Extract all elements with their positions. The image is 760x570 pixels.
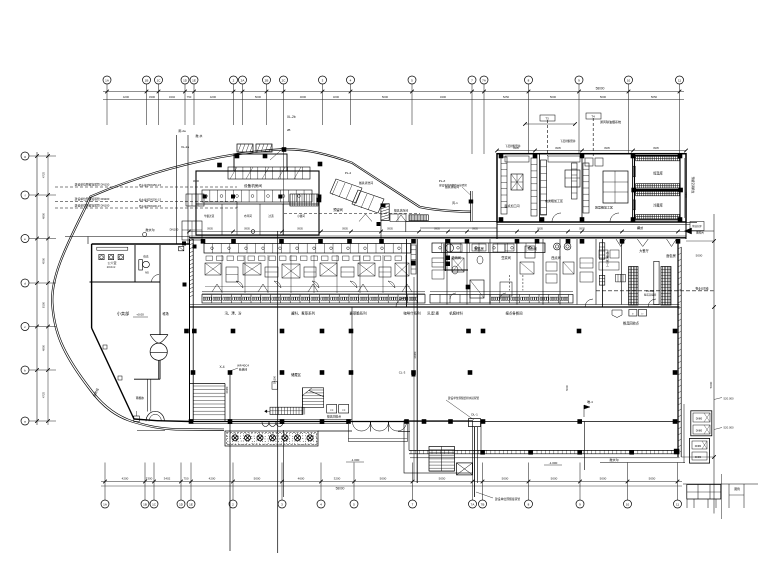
svg-text:电话交接间: 电话交接间: [644, 293, 657, 297]
svg-text:5000: 5000: [600, 95, 607, 99]
svg-text:58000: 58000: [336, 487, 345, 491]
svg-text:酱料、煮菜系列: 酱料、煮菜系列: [291, 311, 315, 316]
svg-text:0905: 0905: [207, 227, 213, 231]
svg-text:小卖部: 小卖部: [117, 310, 130, 317]
svg-text:蔬菜粗加工区: 蔬菜粗加工区: [595, 205, 613, 210]
svg-text:DL-1: DL-1: [471, 413, 478, 417]
svg-text:1A: 1A: [103, 502, 107, 506]
svg-text:4800: 4800: [42, 344, 46, 351]
svg-text:7B: 7B: [481, 502, 485, 506]
svg-text:给水接驳DN200-1.5: 给水接驳DN200-1.5: [139, 197, 162, 201]
svg-text:DN100: DN100: [170, 228, 179, 232]
svg-text:大餐厅: 大餐厅: [639, 248, 649, 253]
svg-text:洗消间: 洗消间: [451, 255, 461, 260]
svg-text:5000: 5000: [551, 477, 558, 481]
svg-text:DN80: DN80: [225, 386, 229, 393]
svg-text:0905: 0905: [342, 227, 348, 231]
svg-text:DN100: DN100: [273, 375, 277, 384]
svg-text:M5: M5: [145, 272, 149, 275]
svg-text:1A: 1A: [105, 78, 109, 82]
svg-text:建设单位预留给水接驳管: 建设单位预留给水接驳管: [439, 183, 467, 187]
svg-text:750: 750: [183, 477, 188, 481]
svg-text:建设单位预留接驳管 DN200: 建设单位预留接驳管 DN200: [75, 197, 110, 201]
svg-text:给水接驳DN150-1.5: 给水接驳DN150-1.5: [139, 183, 162, 187]
svg-text:DN80: DN80: [696, 418, 703, 421]
svg-text:××: ××: [342, 408, 346, 412]
svg-text:散-水: 散-水: [196, 133, 203, 138]
svg-text:唯-4: 唯-4: [587, 399, 593, 404]
svg-text:风-1: 风-1: [452, 201, 458, 205]
svg-text:3200: 3200: [334, 477, 341, 481]
svg-text:图样台: 图样台: [696, 231, 704, 235]
svg-text:7A: 7A: [471, 502, 475, 506]
svg-text:工: 工: [606, 263, 609, 267]
svg-text:5050: 5050: [651, 95, 658, 99]
svg-text:CL-3: CL-3: [399, 371, 406, 375]
svg-text:3300: 3300: [146, 477, 153, 481]
svg-text:5000: 5000: [696, 254, 703, 258]
svg-text:3200: 3200: [333, 95, 340, 99]
svg-text:5000: 5000: [255, 95, 262, 99]
svg-text:4600: 4600: [300, 95, 307, 99]
svg-text:设备机房间: 设备机房间: [244, 183, 262, 188]
svg-text:5250: 5250: [503, 95, 510, 99]
svg-text:0905: 0905: [387, 227, 393, 231]
svg-text:布草间: 布草间: [244, 214, 252, 218]
svg-text:系统间: 系统间: [239, 368, 248, 372]
svg-text:PL-2: PL-2: [345, 171, 352, 175]
svg-text:+0.00: +0.00: [136, 313, 144, 317]
svg-text:雨棚水: 雨棚水: [136, 396, 145, 400]
svg-text:750: 750: [187, 95, 192, 99]
svg-text:通风除油烟系统: 通风除油烟系统: [600, 119, 621, 124]
svg-text:X-4: X-4: [220, 365, 225, 369]
svg-text:蛋糕房: 蛋糕房: [474, 246, 484, 251]
svg-text:建设单位预留接驳管 DN150: 建设单位预留接驳管 DN150: [75, 183, 110, 187]
svg-text:5000: 5000: [550, 95, 557, 99]
svg-text:4600: 4600: [298, 477, 305, 481]
svg-text:5000: 5000: [254, 477, 261, 481]
svg-text:0905: 0905: [513, 146, 519, 150]
svg-text:4725: 4725: [42, 171, 46, 178]
svg-text:建设单位预留给排水接驳管: 建设单位预留给排水接驳管: [448, 396, 480, 400]
svg-text:牛餐过道: 牛餐过道: [204, 214, 215, 218]
svg-text:××: ××: [330, 408, 334, 412]
svg-text:4200: 4200: [122, 477, 129, 481]
svg-text:0905: 0905: [579, 227, 585, 231]
svg-text:PL-Z: PL-Z: [439, 179, 446, 183]
svg-text:DN80: DN80: [695, 456, 702, 459]
svg-text:恒温库: 恒温库: [653, 171, 663, 176]
svg-text:预留间: 预留间: [333, 207, 343, 212]
svg-text:11: 11: [676, 502, 679, 506]
svg-text:11: 11: [678, 78, 681, 82]
svg-text:5050: 5050: [439, 477, 446, 481]
svg-text:T3: T3: [545, 117, 549, 121]
svg-text:餐具回收点: 餐具回收点: [327, 415, 341, 419]
svg-text:煮面间: 煮面间: [527, 246, 537, 251]
svg-text:机腐材料: 机腐材料: [449, 311, 463, 316]
svg-text:520.000: 520.000: [724, 426, 735, 430]
svg-text:冷藏库: 冷藏库: [653, 203, 663, 208]
svg-text:过道: 过道: [268, 214, 274, 218]
svg-text:4200: 4200: [209, 477, 216, 481]
svg-text:1E: 1E: [189, 502, 193, 506]
svg-text:3402: 3402: [164, 477, 171, 481]
svg-text:7A: 7A: [482, 78, 486, 82]
svg-text:下层排烟竖井: 下层排烟竖井: [560, 139, 576, 143]
svg-text:雨-2a: 雨-2a: [178, 129, 186, 133]
svg-text:5000: 5000: [600, 477, 607, 481]
svg-text:0905: 0905: [604, 146, 610, 150]
svg-text:预留空调机位: 预留空调机位: [691, 177, 695, 194]
svg-text:咖啡什系列: 咖啡什系列: [404, 311, 422, 316]
svg-text:餐具回收点: 餐具回收点: [623, 321, 640, 326]
svg-text:DN80: DN80: [695, 445, 702, 448]
svg-text:堆场: 堆场: [162, 311, 168, 316]
svg-text:10.0m²: 10.0m²: [107, 265, 116, 269]
svg-text:3300: 3300: [149, 95, 156, 99]
svg-text:10: 10: [627, 78, 631, 82]
svg-text:图例: 图例: [734, 487, 740, 491]
svg-text:建设单位预留接驳管 DN100: 建设单位预留接驳管 DN100: [75, 204, 110, 208]
svg-text:报点各餐间: 报点各餐间: [506, 311, 524, 316]
svg-text:4200: 4200: [210, 95, 217, 99]
svg-text:4500: 4500: [42, 257, 46, 264]
svg-text:4725: 4725: [42, 391, 46, 398]
svg-text:5050: 5050: [649, 477, 656, 481]
svg-text:1B: 1B: [143, 502, 147, 506]
svg-text:58000: 58000: [596, 87, 605, 91]
svg-text:0905: 0905: [244, 227, 250, 231]
svg-text:散水沟: 散水沟: [145, 227, 154, 232]
svg-text:3400: 3400: [440, 95, 447, 99]
svg-text:肉类粗加工区: 肉类粗加工区: [545, 198, 563, 203]
svg-text:XL-2b: XL-2b: [287, 115, 296, 119]
svg-text:5000: 5000: [709, 381, 713, 388]
svg-text:8520: 8520: [685, 192, 688, 198]
svg-text:1E: 1E: [192, 78, 196, 82]
svg-text:T4: T4: [591, 115, 595, 119]
svg-text:汛.配.煮: 汛.配.煮: [427, 311, 440, 316]
svg-text:DN80: DN80: [413, 351, 417, 358]
svg-text:汛、漂、汾: 汛、漂、汾: [225, 311, 243, 316]
svg-text:0905: 0905: [434, 227, 440, 231]
svg-text:1B: 1B: [145, 78, 149, 82]
svg-text:520.000: 520.000: [724, 397, 735, 401]
svg-text:-1.000: -1.000: [549, 461, 558, 465]
svg-text:豆浆间: 豆浆间: [501, 255, 511, 260]
svg-text:0905: 0905: [653, 146, 659, 150]
svg-text:5000: 5000: [382, 95, 389, 99]
svg-text:物业分界线: 物业分界线: [696, 286, 709, 290]
svg-text:建设单位预留接驳管: 建设单位预留接驳管: [495, 497, 520, 501]
svg-text:-1.000: -1.000: [351, 458, 360, 462]
svg-text:4800: 4800: [42, 212, 46, 219]
svg-text:储藏区: 储藏区: [291, 372, 302, 377]
svg-text:西点间: 西点间: [551, 255, 561, 260]
svg-text:4200: 4200: [123, 95, 130, 99]
svg-text:2B: 2B: [265, 78, 269, 82]
svg-text:0905: 0905: [537, 227, 543, 231]
svg-text:5000: 5000: [502, 477, 509, 481]
svg-text:餐具洗涤间: 餐具洗涤间: [394, 209, 408, 213]
svg-text:送-4: 送-4: [637, 225, 643, 230]
svg-text:面包房: 面包房: [666, 253, 676, 258]
svg-text:5000: 5000: [380, 477, 387, 481]
svg-text:0905: 0905: [555, 146, 561, 150]
svg-text:0905: 0905: [472, 227, 478, 231]
svg-text:面点加工间: 面点加工间: [504, 203, 519, 208]
svg-text:2A: 2A: [241, 78, 245, 82]
svg-text:DN80: DN80: [696, 430, 703, 433]
svg-text:8100: 8100: [42, 301, 46, 308]
svg-text:餐具清洗间: 餐具清洗间: [359, 181, 373, 185]
svg-text:散水沟: 散水沟: [609, 457, 618, 462]
svg-text:给水接驳DN100-1.5: 给水接驳DN100-1.5: [139, 204, 162, 208]
svg-text:休息: 休息: [143, 255, 149, 259]
svg-text:0905: 0905: [297, 227, 303, 231]
svg-text:小餐间: 小餐间: [297, 214, 305, 218]
svg-text:5000: 5000: [565, 385, 569, 391]
svg-text:3402: 3402: [169, 95, 176, 99]
svg-text:10: 10: [626, 502, 630, 506]
svg-text:2B: 2B: [287, 128, 291, 132]
